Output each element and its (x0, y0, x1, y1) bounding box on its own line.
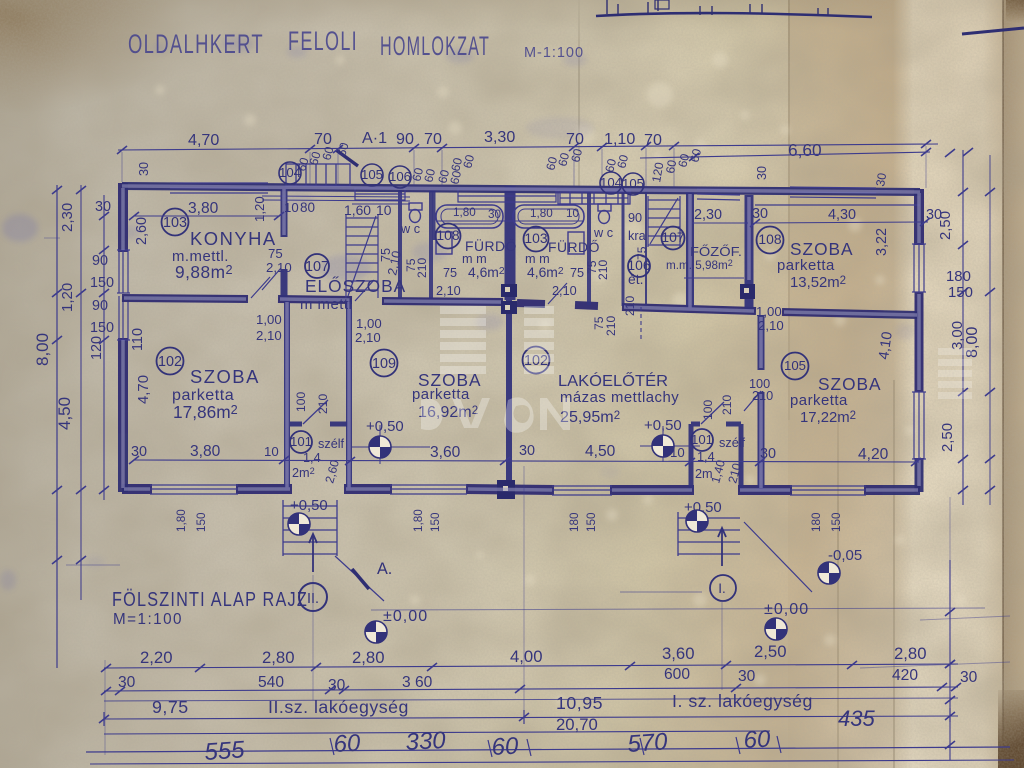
svg-text:A·1: A·1 (362, 129, 387, 147)
svg-text:30: 30 (137, 162, 151, 176)
svg-text:120: 120 (89, 336, 105, 360)
svg-text:80: 80 (300, 200, 315, 215)
svg-text:60: 60 (491, 733, 520, 761)
svg-text:75: 75 (443, 266, 457, 280)
svg-text:4,20: 4,20 (858, 446, 889, 463)
svg-text:FŐZŐF.: FŐZŐF. (690, 244, 742, 259)
svg-text:2,80: 2,80 (352, 648, 384, 667)
svg-text:2,50: 2,50 (940, 423, 956, 452)
svg-text:20,70: 20,70 (556, 715, 598, 734)
svg-text:4,70: 4,70 (136, 375, 152, 404)
svg-text:104: 104 (600, 175, 622, 190)
svg-text:FÖLSZINTI ALAP RAJZ: FÖLSZINTI ALAP RAJZ (112, 589, 308, 611)
svg-text:30: 30 (131, 444, 147, 460)
svg-text:szélf: szélf (318, 437, 345, 451)
svg-text:3 60: 3 60 (402, 674, 433, 691)
svg-text:30: 30 (519, 443, 535, 459)
svg-text:SZOBA: SZOBA (818, 374, 882, 394)
svg-text:1,20: 1,20 (59, 283, 76, 312)
svg-text:420: 420 (892, 667, 918, 684)
svg-text:4,50: 4,50 (585, 443, 616, 460)
svg-text:106: 106 (389, 169, 411, 184)
svg-text:+0,50: +0,50 (366, 419, 404, 435)
svg-text:105: 105 (784, 358, 806, 373)
svg-text:108: 108 (758, 231, 781, 247)
svg-text:1,00: 1,00 (256, 312, 282, 327)
svg-text:+0,50: +0,50 (290, 498, 328, 514)
svg-text:I.: I. (718, 581, 726, 596)
svg-text:30: 30 (873, 172, 889, 188)
svg-text:parketta: parketta (777, 258, 835, 274)
svg-text:30: 30 (738, 668, 756, 685)
svg-text:4,00: 4,00 (510, 647, 542, 666)
svg-text:210: 210 (720, 395, 734, 415)
svg-text:150: 150 (90, 275, 114, 291)
svg-text:w c: w c (400, 222, 421, 236)
svg-text:30: 30 (755, 166, 769, 180)
svg-text:103: 103 (163, 215, 187, 231)
svg-text:6,60: 6,60 (788, 140, 822, 160)
svg-text:210: 210 (596, 260, 610, 280)
svg-text:2,10: 2,10 (552, 284, 577, 298)
svg-text:1,4: 1,4 (303, 451, 321, 465)
svg-text:60: 60 (333, 730, 362, 758)
svg-text:2,10: 2,10 (355, 330, 381, 345)
svg-text:M-1:100: M-1:100 (524, 44, 584, 61)
svg-text:3,22: 3,22 (874, 228, 890, 256)
svg-text:30: 30 (95, 199, 111, 215)
svg-text:104: 104 (279, 165, 301, 180)
svg-text:2,30: 2,30 (694, 207, 722, 223)
svg-text:210: 210 (415, 258, 429, 278)
svg-text:4,50: 4,50 (55, 397, 74, 430)
svg-text:150: 150 (585, 512, 598, 532)
svg-text:30: 30 (760, 446, 776, 462)
svg-text:210: 210 (623, 296, 637, 316)
svg-text:100: 100 (294, 392, 308, 412)
svg-text:2,30: 2,30 (59, 203, 76, 232)
svg-text:1,80: 1,80 (530, 207, 553, 220)
svg-text:180: 180 (946, 269, 971, 285)
svg-text:2,10: 2,10 (256, 328, 282, 343)
svg-text:A.: A. (377, 560, 392, 578)
svg-text:m.m. 5,98m2: m.m. 5,98m2 (666, 258, 733, 272)
svg-text:90: 90 (92, 253, 108, 269)
svg-text:60: 60 (743, 726, 772, 754)
svg-text:30: 30 (960, 669, 978, 686)
svg-text:75: 75 (268, 246, 283, 261)
svg-text:2,80: 2,80 (894, 644, 926, 663)
svg-text:10: 10 (264, 444, 279, 459)
svg-text:LAKÓELŐTÉR: LAKÓELŐTÉR (558, 373, 668, 390)
svg-text:105: 105 (361, 167, 383, 182)
svg-text:2,60: 2,60 (134, 217, 150, 245)
svg-text:70: 70 (566, 130, 584, 148)
svg-text:8,00: 8,00 (33, 333, 52, 366)
svg-text:75: 75 (635, 246, 649, 260)
svg-text:10: 10 (670, 445, 685, 460)
svg-text:108: 108 (436, 227, 459, 243)
svg-text:109: 109 (372, 356, 396, 372)
svg-text:parketta: parketta (790, 393, 848, 409)
svg-text:4,70: 4,70 (188, 131, 219, 149)
svg-text:4,30: 4,30 (828, 207, 856, 223)
svg-text:150: 150 (429, 512, 442, 532)
svg-text:100: 100 (701, 400, 715, 420)
svg-text:±0,00: ±0,00 (383, 607, 428, 625)
svg-text:10: 10 (566, 207, 580, 220)
svg-text:3,80: 3,80 (190, 443, 221, 460)
svg-text:30: 30 (118, 674, 136, 691)
svg-text:9,75: 9,75 (152, 697, 189, 717)
svg-text:2,50: 2,50 (938, 211, 954, 240)
svg-text:540: 540 (258, 674, 284, 691)
svg-text:2,10: 2,10 (266, 260, 292, 275)
svg-text:210: 210 (604, 316, 618, 336)
svg-text:HOMLOKZAT: HOMLOKZAT (380, 31, 490, 61)
svg-text:13,52m2: 13,52m2 (790, 275, 846, 291)
svg-text:3,60: 3,60 (430, 444, 461, 461)
svg-text:555: 555 (204, 736, 246, 766)
svg-text:180: 180 (568, 512, 581, 532)
svg-text:OLDALHKERT: OLDALHKERT (128, 29, 264, 59)
svg-text:m mettl: m mettl (300, 297, 352, 313)
svg-text:107: 107 (305, 259, 329, 275)
svg-text:150: 150 (195, 512, 208, 532)
svg-text:107: 107 (661, 229, 684, 245)
svg-text:1,00: 1,00 (356, 316, 382, 331)
svg-text:2,50: 2,50 (754, 642, 786, 661)
svg-text:II.sz. lakóegység: II.sz. lakóegység (268, 697, 409, 717)
svg-text:210: 210 (752, 389, 773, 403)
svg-text:FELOLI: FELOLI (288, 26, 358, 56)
svg-text:SZOBA: SZOBA (790, 239, 854, 259)
svg-text:3,80: 3,80 (188, 200, 219, 217)
svg-text:1,10: 1,10 (604, 130, 635, 148)
svg-text:1,60: 1,60 (344, 202, 371, 218)
svg-text:FÜRDŐ: FÜRDŐ (548, 238, 600, 255)
svg-text:szélf: szélf (719, 436, 746, 450)
svg-text:2,80: 2,80 (262, 648, 294, 667)
svg-text:90: 90 (628, 211, 642, 225)
svg-text:2,10: 2,10 (758, 318, 784, 333)
svg-text:600: 600 (664, 666, 690, 683)
svg-text:17,86m2: 17,86m2 (173, 402, 238, 422)
svg-text:I. sz. lakóegység: I. sz. lakóegység (672, 691, 813, 711)
svg-text:570: 570 (627, 728, 669, 758)
svg-text:SZOBA: SZOBA (190, 366, 260, 387)
svg-text:1,80: 1,80 (412, 509, 425, 532)
svg-text:101: 101 (290, 434, 312, 449)
svg-text:105: 105 (622, 176, 644, 191)
svg-text:110: 110 (130, 328, 146, 351)
svg-text:parketta: parketta (412, 387, 470, 403)
svg-text:9,88m2: 9,88m2 (175, 262, 233, 282)
svg-text:1,20: 1,20 (252, 196, 267, 222)
svg-text:1,00: 1,00 (756, 304, 782, 319)
svg-text:330: 330 (405, 727, 447, 756)
svg-text:2,20: 2,20 (140, 648, 172, 667)
svg-text:90: 90 (92, 298, 108, 314)
svg-text:150: 150 (830, 512, 843, 532)
svg-text:103: 103 (524, 230, 547, 246)
svg-text:M=1:100: M=1:100 (113, 611, 183, 628)
svg-text:102: 102 (158, 354, 182, 370)
svg-text:KONYHA: KONYHA (190, 228, 277, 249)
svg-text:30: 30 (328, 677, 346, 694)
svg-text:1,80: 1,80 (175, 509, 188, 532)
svg-text:3,30: 3,30 (484, 128, 515, 146)
svg-text:10: 10 (376, 202, 392, 218)
svg-text:mázas mettlachy: mázas mettlachy (560, 390, 679, 406)
svg-text:-0,05: -0,05 (828, 547, 862, 564)
svg-text:180: 180 (810, 512, 823, 532)
svg-text:10: 10 (284, 200, 299, 215)
svg-text:150: 150 (948, 285, 973, 301)
svg-text:2,10: 2,10 (436, 284, 461, 298)
svg-text:90: 90 (396, 130, 414, 148)
svg-text:30: 30 (488, 208, 502, 221)
svg-text:ELŐSZOBA: ELŐSZOBA (305, 276, 406, 296)
svg-text:435: 435 (838, 706, 875, 731)
svg-text:70: 70 (644, 131, 662, 149)
svg-text:3,60: 3,60 (662, 644, 694, 663)
svg-text:210: 210 (316, 394, 330, 414)
svg-text:70: 70 (424, 130, 442, 148)
svg-text:17,22m2: 17,22m2 (800, 410, 856, 426)
svg-text:150: 150 (90, 320, 114, 336)
svg-text:75: 75 (570, 266, 584, 280)
svg-text:kra: kra (628, 229, 647, 243)
svg-text:10,95: 10,95 (556, 693, 603, 713)
svg-text:w c: w c (593, 226, 614, 240)
svg-text:1,80: 1,80 (453, 206, 476, 219)
svg-text:±0,00: ±0,00 (764, 600, 809, 618)
svg-text:101: 101 (691, 432, 713, 447)
